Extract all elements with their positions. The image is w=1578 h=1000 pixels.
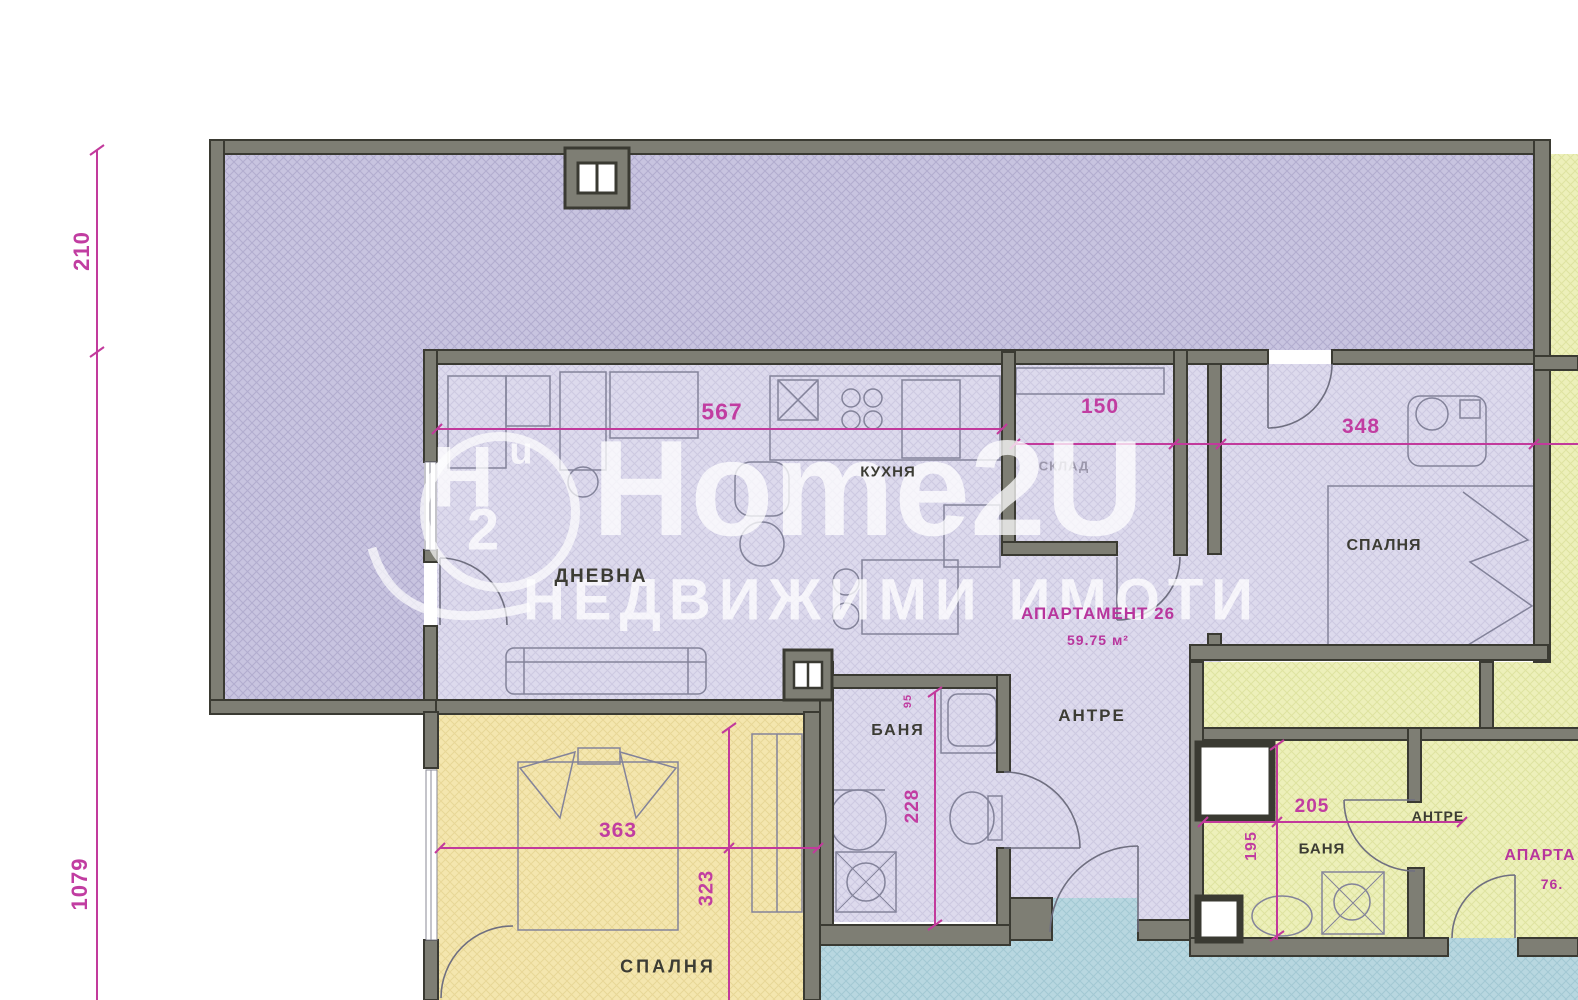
room-label-bath: БАНЯ — [871, 722, 925, 740]
apartment-adjacent-name: АПАРТА — [1504, 847, 1575, 865]
dim-storage-width: 150 — [1081, 395, 1119, 419]
shaft-box-small — [1198, 898, 1240, 940]
dim-bedroom-right-width: 348 — [1342, 415, 1380, 439]
dim-bath-adjacent-depth: 195 — [1243, 831, 1261, 861]
dim-side-total: 1079 — [67, 858, 93, 911]
watermark-logo-sub: 2 — [467, 497, 499, 564]
dim-bath-adjacent-width: 205 — [1295, 796, 1330, 818]
apartment-area: 59.75 м² — [1067, 632, 1129, 648]
room-label-bedroom-bottom: СПАЛНЯ — [620, 957, 716, 978]
dim-terrace-depth: 210 — [69, 231, 95, 271]
wall-vent-icon — [784, 650, 832, 700]
shaft-box — [1198, 744, 1272, 818]
dim-bath-door: 95 — [902, 694, 914, 708]
dim-living-width: 567 — [701, 399, 742, 426]
room-label-hall-adjacent: АНТРЕ — [1412, 808, 1464, 824]
watermark-logo-sup: u — [509, 431, 532, 474]
dim-bedroom-bottom-depth: 323 — [696, 870, 719, 906]
room-label-hall: АНТРЕ — [1058, 706, 1126, 726]
apartment-adjacent-area: 76. — [1541, 876, 1563, 892]
room-label-kitchen: КУХНЯ — [860, 464, 915, 481]
dim-bedroom-bottom-width: 363 — [599, 819, 637, 843]
room-label-bath-adjacent: БАНЯ — [1299, 841, 1346, 858]
floor-plan-page: 210 1079 567 150 348 95 228 363 323 205 … — [0, 0, 1578, 1000]
dim-bath-depth: 228 — [902, 789, 924, 824]
room-label-bedroom-right: СПАЛНЯ — [1346, 537, 1421, 555]
roof-vent-icon — [565, 148, 629, 208]
apartment-name: АПАРТАМЕНТ 26 — [1021, 604, 1175, 624]
room-label-living: ДНЕВНА — [554, 566, 647, 588]
watermark-brand: Home2U — [592, 410, 1144, 566]
